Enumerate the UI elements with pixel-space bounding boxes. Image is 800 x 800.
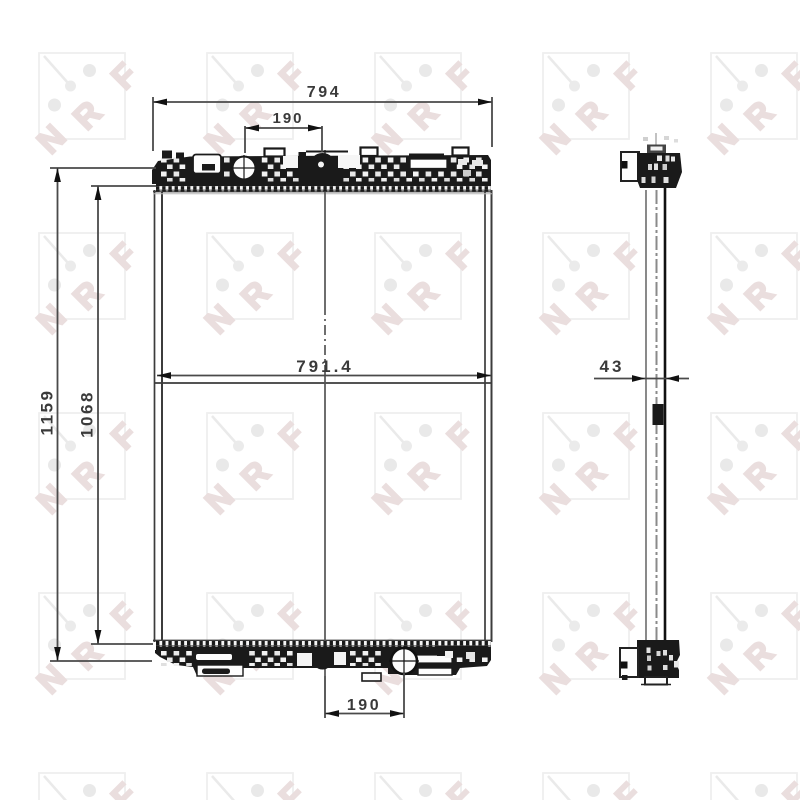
svg-text:43: 43 [600, 357, 625, 376]
svg-text:190: 190 [347, 697, 381, 714]
svg-text:1159: 1159 [38, 389, 57, 436]
svg-text:1068: 1068 [78, 390, 97, 438]
svg-text:190: 190 [272, 110, 303, 127]
svg-text:791.4: 791.4 [296, 357, 354, 376]
svg-text:794: 794 [307, 84, 342, 101]
